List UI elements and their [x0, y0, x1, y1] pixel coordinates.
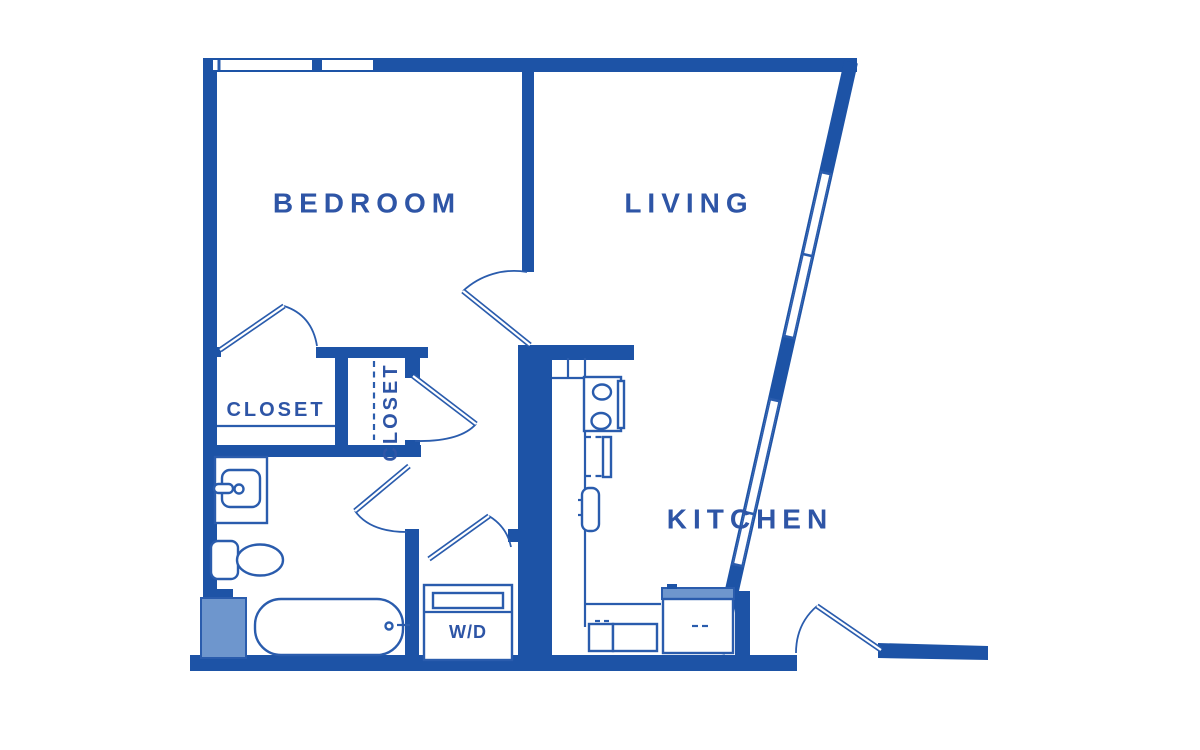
bathroom [201, 457, 410, 658]
wall-bedroom-living-divider [522, 70, 534, 272]
washer-dryer-door [429, 516, 511, 559]
washer-dryer-drawer [433, 593, 503, 608]
refrigerator-hinge [667, 584, 677, 589]
refrigerator-top [662, 588, 734, 599]
stove-burner-bottom [592, 413, 611, 429]
stove-handle [618, 381, 624, 428]
vanity-faucet-knob [235, 485, 244, 494]
bedroom-entry-door [463, 271, 530, 345]
washer-dryer-label: W/D [449, 622, 487, 642]
wall-fridge-stub [735, 591, 750, 657]
wall-hall-closet-jamb-top [405, 356, 420, 378]
wall-hall-closet-jamb-bottom [405, 440, 420, 457]
hall-closet-door [413, 376, 476, 441]
wall-kitchen-top-stub [518, 345, 634, 360]
kitchen-label: KITCHEN [667, 504, 833, 535]
bathroom-door [355, 466, 409, 532]
apartment-entry-door [796, 606, 881, 653]
bedroom-top-windows [213, 60, 373, 70]
wall-closet-divider [335, 356, 348, 446]
bathtub-drain [386, 623, 393, 630]
floor-plan-svg: BEDROOM LIVING KITCHEN CLOSET CLOSET W/D [0, 0, 1200, 750]
vanity-faucet [214, 484, 233, 493]
hall-closet-label: CLOSET [380, 362, 402, 461]
walls [190, 58, 988, 671]
kitchen-sink [582, 488, 599, 531]
shower-shaft [201, 598, 246, 658]
toilet-bowl [237, 545, 283, 576]
stove-burner-top [593, 385, 611, 400]
base-cabinet-a [589, 624, 613, 651]
base-cabinet-b [613, 624, 657, 651]
wall-tub-corner-bar [203, 589, 233, 598]
bedroom-closet-door [220, 306, 317, 350]
bedroom-label: BEDROOM [273, 188, 461, 219]
living-label: LIVING [624, 188, 753, 219]
wall-right-slanted [711, 60, 858, 654]
toilet-tank [211, 541, 238, 579]
wall-bath-wd [405, 529, 419, 662]
wall-central-vertical [518, 345, 552, 663]
floor-plan-page: BEDROOM LIVING KITCHEN CLOSET CLOSET W/D [0, 0, 1200, 750]
bedroom-closet-label: CLOSET [226, 399, 325, 421]
dishwasher-door [603, 437, 611, 477]
bathtub [255, 599, 403, 655]
wall-bottom-right-angled [878, 643, 988, 660]
